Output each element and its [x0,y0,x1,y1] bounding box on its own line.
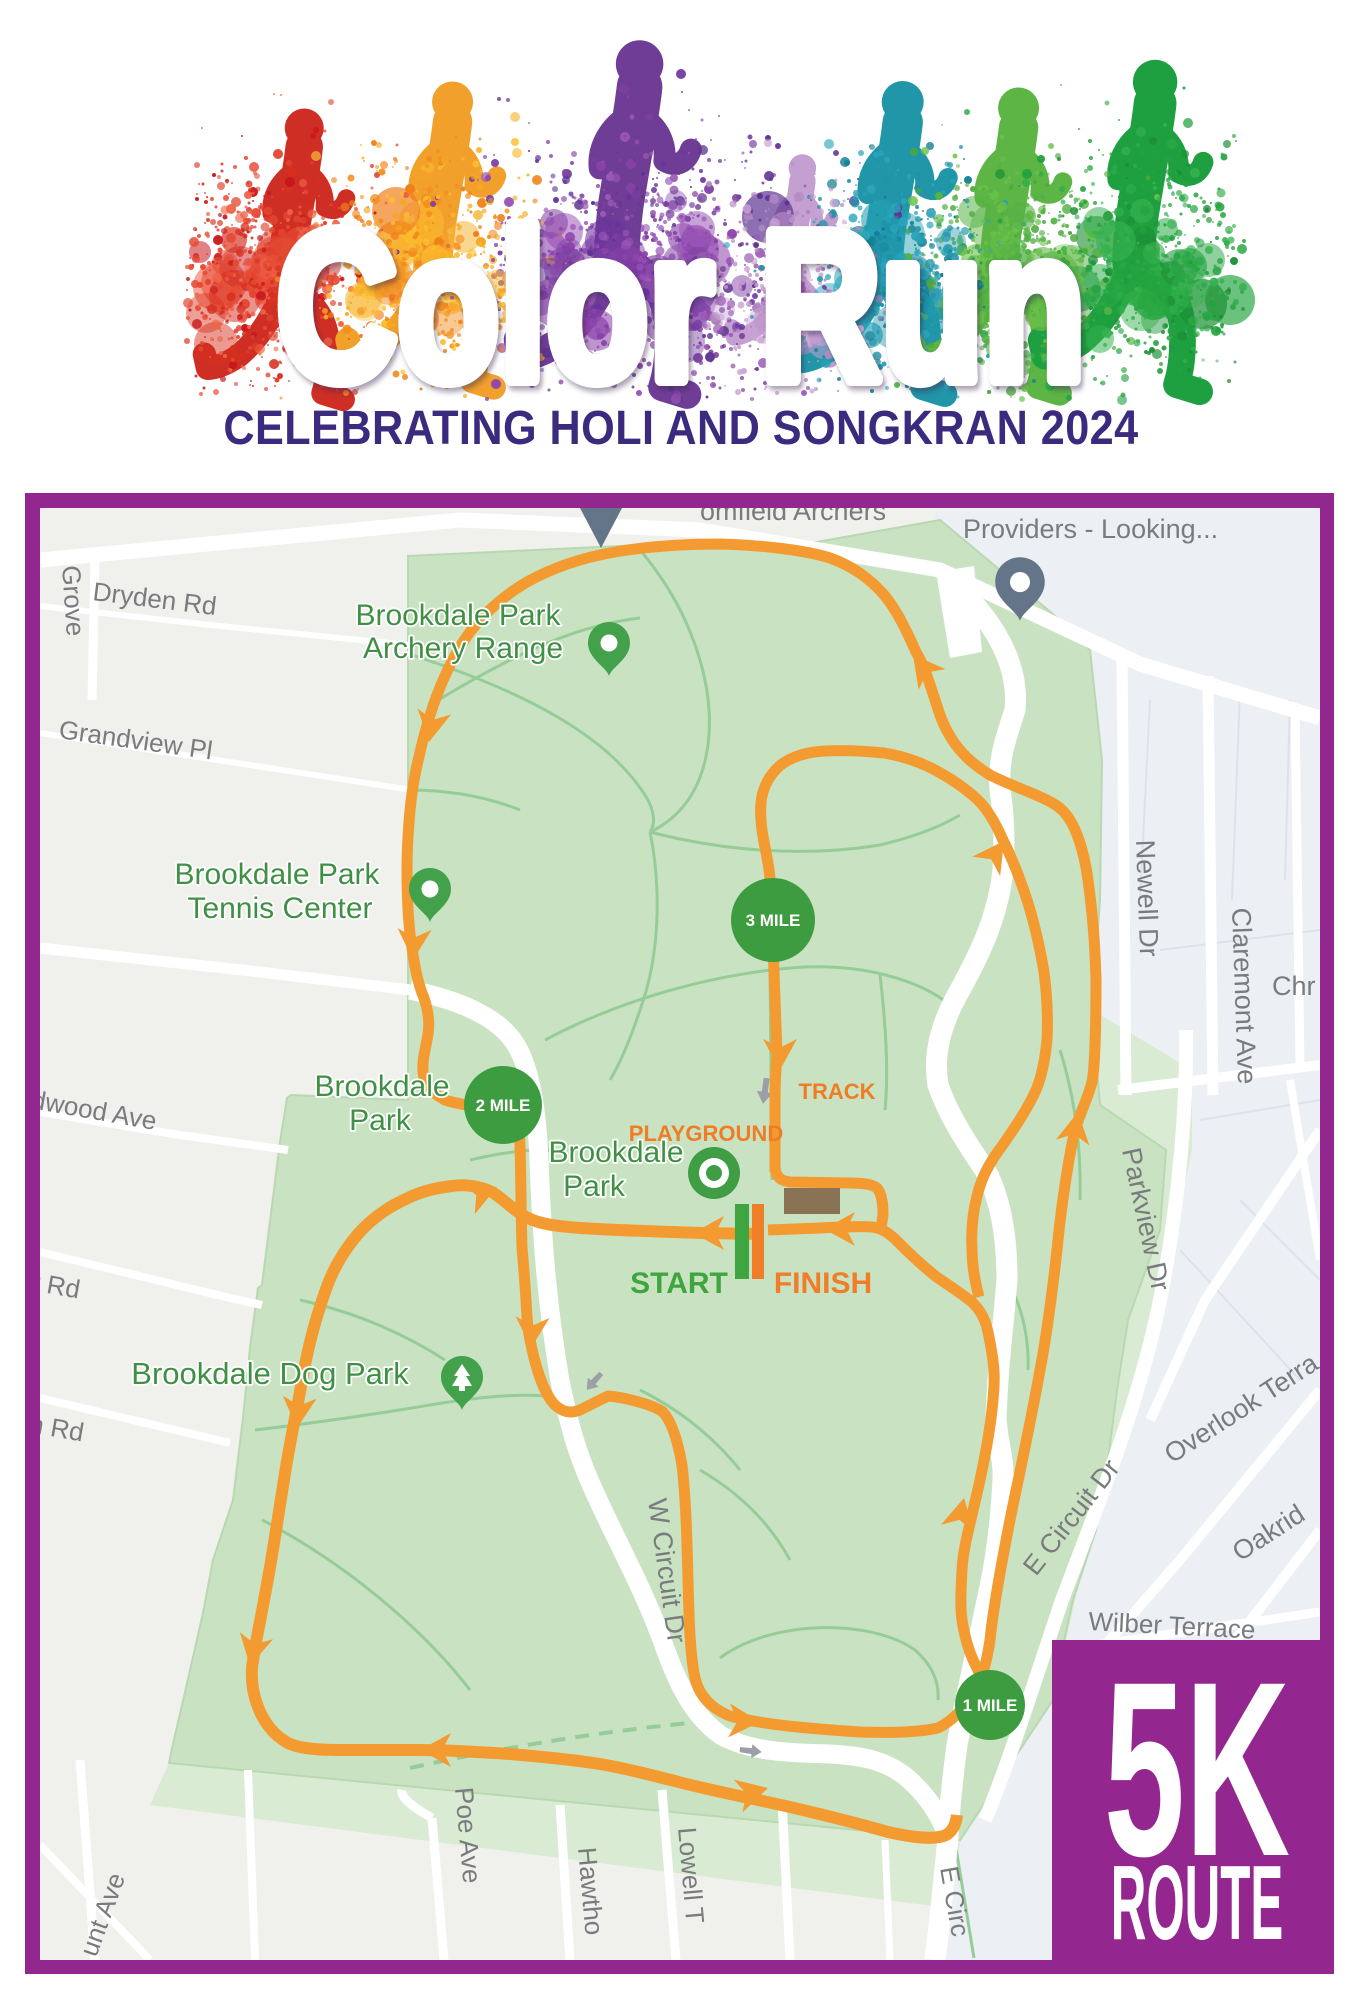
svg-text:Archery Range: Archery Range [363,632,563,665]
svg-text:Grove: Grove [56,564,91,637]
svg-text:ROUTE: ROUTE [1111,1843,1284,1962]
svg-text:Brookdale Park: Brookdale Park [355,599,561,632]
svg-text:Providers - Looking...: Providers - Looking... [963,514,1218,544]
svg-text:Park: Park [563,1170,626,1203]
svg-text:3 MILE: 3 MILE [746,911,801,930]
svg-text:Tennis Center: Tennis Center [187,892,372,925]
svg-text:FINISH: FINISH [774,1267,872,1300]
svg-text:Brookdale Park: Brookdale Park [174,858,380,891]
svg-text:Claremont Ave: Claremont Ave [1226,907,1262,1085]
svg-text:Park: Park [349,1104,412,1137]
svg-text:Newell Dr: Newell Dr [1130,839,1164,957]
svg-text:START: START [630,1267,728,1300]
svg-text:Brookdale: Brookdale [314,1070,449,1103]
svg-text:Chr: Chr [1272,971,1316,1001]
svg-text:PLAYGROUND: PLAYGROUND [629,1121,783,1146]
svg-text:Brookdale Dog Park: Brookdale Dog Park [131,1356,409,1391]
svg-text:2 MILE: 2 MILE [476,1096,531,1115]
svg-text:TRACK: TRACK [799,1079,876,1104]
svg-text:1 MILE: 1 MILE [963,1696,1018,1715]
